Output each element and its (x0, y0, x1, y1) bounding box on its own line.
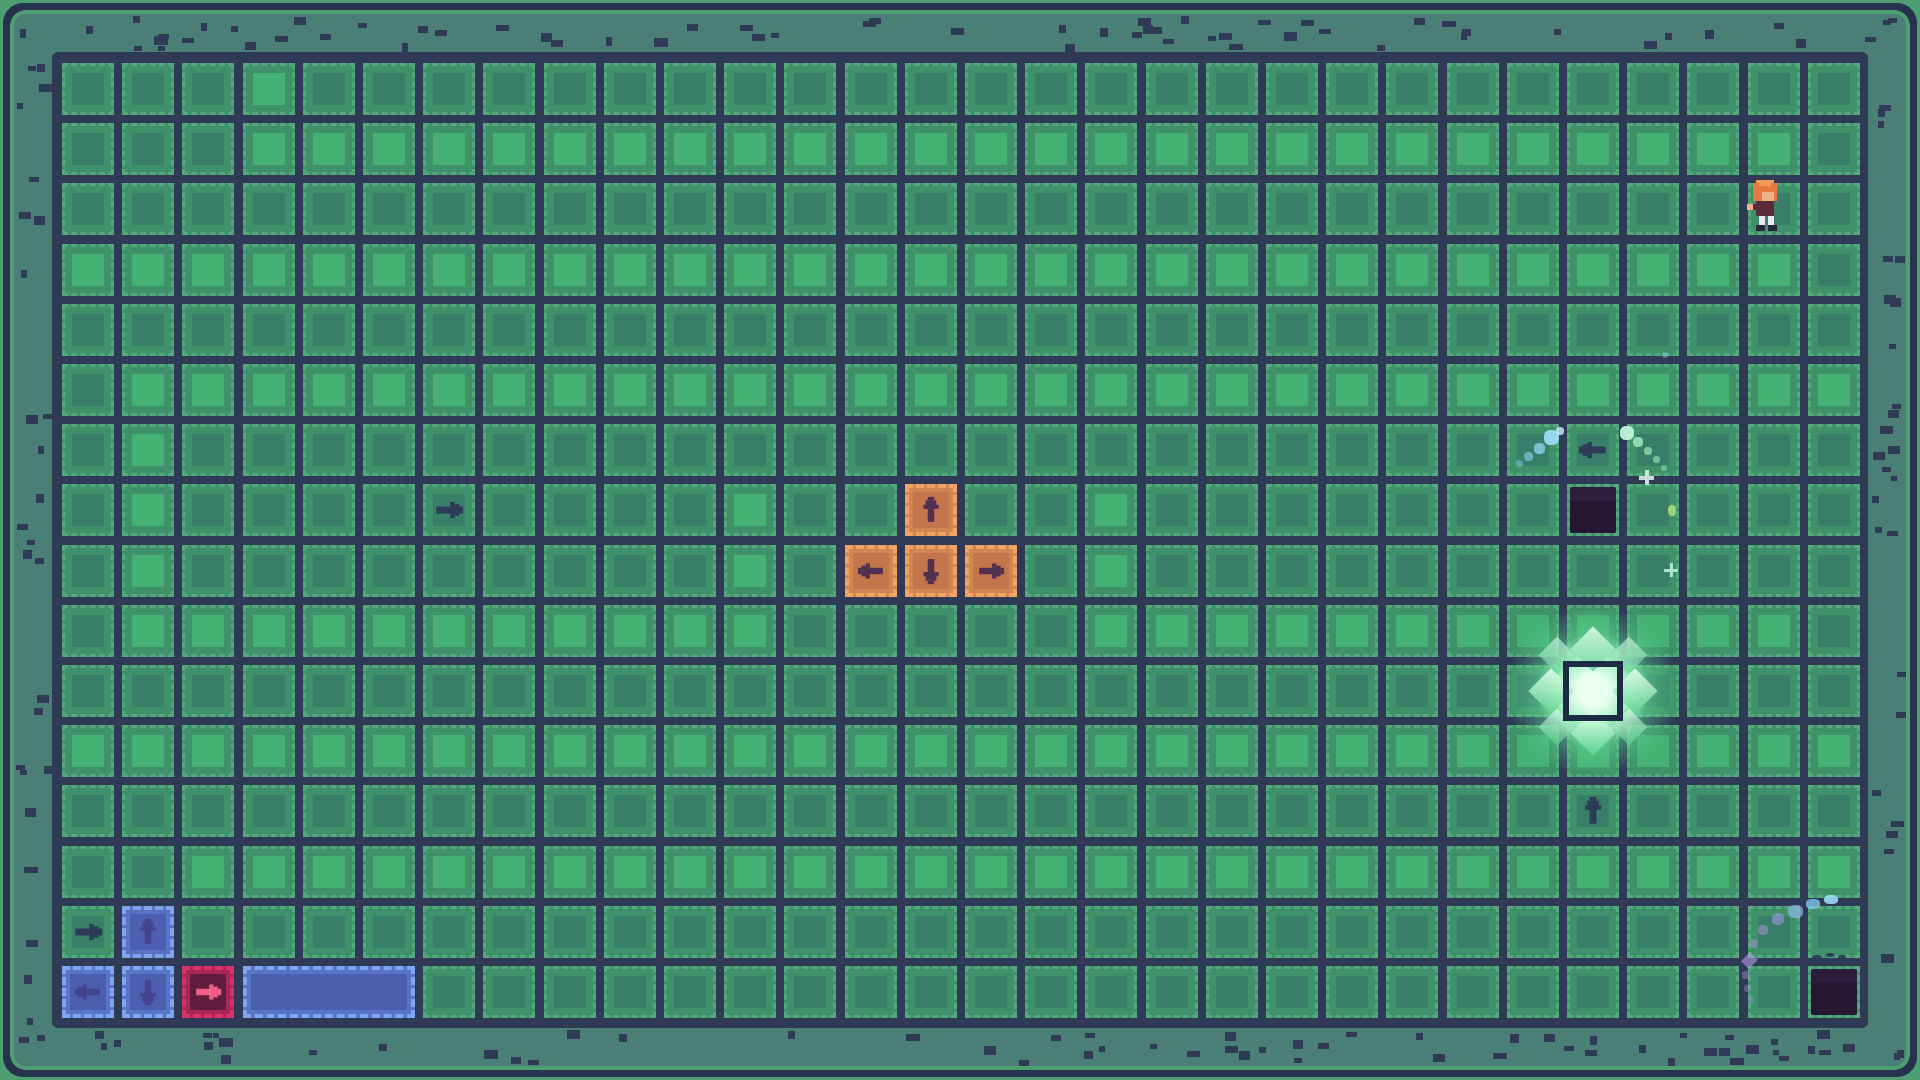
grid-cell (784, 725, 836, 777)
grid-cell (1507, 183, 1559, 235)
grid-cell (1447, 665, 1499, 717)
grid-cell (363, 906, 415, 958)
grid-cell (905, 183, 957, 235)
grid-cell (1025, 725, 1077, 777)
grid-cell-inner (674, 434, 706, 466)
grid-cell-inner (915, 735, 947, 767)
grid-cell-inner (1577, 916, 1609, 948)
grid-cell-inner (1276, 555, 1308, 587)
grid-cell (1687, 183, 1739, 235)
grid-cell-inner (373, 133, 405, 165)
grid-cell (1326, 906, 1378, 958)
grid-cell (544, 966, 596, 1018)
grid-cell (845, 484, 897, 536)
grid-cell-inner (313, 615, 345, 647)
grid-cell (1687, 966, 1739, 1018)
grid-cell-inner (1095, 314, 1127, 346)
grid-cell (544, 123, 596, 175)
grid-cell (1567, 966, 1619, 1018)
grid-cell (303, 665, 355, 717)
grid-cell-inner (72, 856, 104, 888)
grid-cell-inner (1095, 133, 1127, 165)
grid-cell (1808, 785, 1860, 837)
grid-cell (62, 484, 114, 536)
grid-cell (1326, 304, 1378, 356)
grid-cell (243, 63, 295, 115)
grid-cell (1085, 63, 1137, 115)
grid-cell (1447, 725, 1499, 777)
orange-arrow-tile-up[interactable] (905, 484, 957, 536)
grid-cell-inner (1457, 916, 1489, 948)
grid-cell-inner (674, 856, 706, 888)
grid-cell (243, 244, 295, 296)
grid-cell-inner (132, 555, 164, 587)
grid-cell (544, 846, 596, 898)
grid-cell-inner (1336, 73, 1368, 105)
grid-cell (724, 966, 776, 1018)
blue-arrow-tile-up[interactable] (122, 906, 174, 958)
grid-cell (1025, 846, 1077, 898)
grid-cell (1146, 605, 1198, 657)
grid-cell-inner (493, 494, 525, 526)
grid-cell-inner (132, 494, 164, 526)
grid-cell (1687, 846, 1739, 898)
grid-cell-inner (313, 73, 345, 105)
grid-cell (182, 906, 234, 958)
grid-cell (1266, 605, 1318, 657)
grid-cell-inner (1156, 374, 1188, 406)
grid-cell (1748, 424, 1800, 476)
grid-cell-inner (1637, 494, 1669, 526)
grid-cell-inner (313, 314, 345, 346)
grid-cell-inner (1336, 615, 1368, 647)
grid-cell (845, 424, 897, 476)
grid-cell-inner (1216, 856, 1248, 888)
grid-cell (724, 846, 776, 898)
grid-cell-inner (915, 73, 947, 105)
grid-cell (1085, 605, 1137, 657)
grid-cell (1206, 364, 1258, 416)
grid-cell (604, 484, 656, 536)
grid-cell-inner (915, 314, 947, 346)
grid-cell (1567, 846, 1619, 898)
grid-cell-inner (1156, 675, 1188, 707)
grid-cell-inner (253, 374, 285, 406)
grid-cell (62, 244, 114, 296)
grid-cell-inner (1156, 133, 1188, 165)
grid-cell (784, 966, 836, 1018)
grid-cell-inner (1336, 254, 1368, 286)
blue-arrow-tile-left[interactable] (62, 966, 114, 1018)
grid-cell-inner (493, 795, 525, 827)
grid-cell (1146, 785, 1198, 837)
grid-cell-inner (1216, 193, 1248, 225)
grid-cell (845, 846, 897, 898)
grid-cell-inner (72, 193, 104, 225)
grid-cell-inner (433, 193, 465, 225)
grid-cell-inner (433, 856, 465, 888)
player-character[interactable] (1747, 180, 1783, 238)
grid-cell (182, 364, 234, 416)
grid-cell (1326, 966, 1378, 1018)
grid-cell (62, 605, 114, 657)
grid-cell-inner (915, 675, 947, 707)
grid-cell (1025, 484, 1077, 536)
grid-cell-inner (1095, 976, 1127, 1008)
grid-cell-inner (734, 254, 766, 286)
grid-cell-inner (493, 254, 525, 286)
grid-cell-inner (1758, 976, 1790, 1008)
grid-cell (604, 785, 656, 837)
grid-cell (423, 545, 475, 597)
grid-cell-inner (132, 615, 164, 647)
grid-cell (1748, 63, 1800, 115)
grid-cell (724, 906, 776, 958)
grid-cell (122, 364, 174, 416)
grid-cell (965, 906, 1017, 958)
grid-cell (182, 545, 234, 597)
grid-cell-inner (1095, 856, 1127, 888)
grid-cell-inner (1577, 314, 1609, 346)
grid-cell (604, 244, 656, 296)
grid-cell-inner (674, 615, 706, 647)
grid-cell (905, 665, 957, 717)
grid-cell-inner (1637, 976, 1669, 1008)
grid-cell-inner (1095, 374, 1127, 406)
grid-cell-inner (915, 916, 947, 948)
grid-cell (724, 725, 776, 777)
grid-cell (664, 123, 716, 175)
grid-cell (1507, 364, 1559, 416)
grid-cell (1206, 605, 1258, 657)
ground-arrow-right (62, 906, 114, 958)
grid-cell (724, 484, 776, 536)
grid-cell (1748, 545, 1800, 597)
grid-cell (604, 424, 656, 476)
grid-cell-inner (373, 555, 405, 587)
orange-arrow-tile-left[interactable] (845, 545, 897, 597)
blue-bar-tile[interactable] (243, 966, 415, 1018)
grid-cell (544, 244, 596, 296)
grid-cell (905, 846, 957, 898)
grid-cell-inner (493, 976, 525, 1008)
grid-cell (905, 304, 957, 356)
grid-cell (1748, 244, 1800, 296)
grid-cell (182, 785, 234, 837)
grid-cell-inner (1457, 133, 1489, 165)
grid-cell-inner (975, 374, 1007, 406)
grid-cell (905, 605, 957, 657)
particle-dot (1662, 352, 1668, 358)
grid-cell (1146, 183, 1198, 235)
grid-cell (1025, 244, 1077, 296)
orange-arrow-tile-right[interactable] (965, 545, 1017, 597)
grid-cell-inner (1396, 73, 1428, 105)
grid-cell (965, 244, 1017, 296)
grid-cell (1146, 665, 1198, 717)
grid-cell (604, 966, 656, 1018)
grid-cell-inner (1276, 434, 1308, 466)
grid-cell-inner (915, 976, 947, 1008)
grid-cell-inner (1156, 795, 1188, 827)
grid-cell-inner (1637, 916, 1669, 948)
grid-cell (544, 545, 596, 597)
grid-cell-inner (975, 795, 1007, 827)
grid-cell (122, 244, 174, 296)
grid-cell-inner (1156, 494, 1188, 526)
grid-cell-inner (554, 856, 586, 888)
grid-cell-inner (1457, 193, 1489, 225)
grid-cell (1266, 123, 1318, 175)
grid-cell-inner (1095, 916, 1127, 948)
grid-cell-inner (1697, 856, 1729, 888)
grid-cell (122, 63, 174, 115)
grid-cell (483, 605, 535, 657)
grid-cell-inner (313, 374, 345, 406)
grid-cell (1627, 364, 1679, 416)
grid-cell-inner (1577, 976, 1609, 1008)
grid-cell (62, 785, 114, 837)
grid-cell-inner (1276, 374, 1308, 406)
grid-cell (965, 484, 1017, 536)
grid-cell (1025, 123, 1077, 175)
grid-cell-inner (915, 434, 947, 466)
grid-cell-inner (493, 735, 525, 767)
grid-cell (1748, 966, 1800, 1018)
grid-cell-inner (1336, 976, 1368, 1008)
grid-cell (483, 123, 535, 175)
grid-cell-inner (1396, 976, 1428, 1008)
grid-cell (784, 484, 836, 536)
grid-cell-inner (1035, 314, 1067, 346)
grid-cell (604, 364, 656, 416)
grid-cell-inner (1336, 675, 1368, 707)
grid-cell (965, 123, 1017, 175)
grid-cell (182, 244, 234, 296)
grid-cell-inner (1758, 735, 1790, 767)
grid-cell (1627, 304, 1679, 356)
grid-cell (1808, 183, 1860, 235)
grid-cell-inner (614, 856, 646, 888)
grid-cell-inner (313, 735, 345, 767)
grid-cell (1085, 304, 1137, 356)
grid-cell-inner (132, 133, 164, 165)
grid-cell (1627, 63, 1679, 115)
grid-cell-inner (1095, 735, 1127, 767)
grid-cell (1025, 605, 1077, 657)
grid-cell (1386, 304, 1438, 356)
grid-cell (363, 364, 415, 416)
grid-cell (544, 484, 596, 536)
grid-cell-inner (1818, 494, 1850, 526)
grid-cell-inner (132, 73, 164, 105)
grid-cell-inner (674, 916, 706, 948)
grid-cell-inner (794, 494, 826, 526)
down-arrow-icon (134, 978, 162, 1006)
grid-cell-inner (1035, 133, 1067, 165)
grid-cell (1266, 906, 1318, 958)
grid-cell (182, 484, 234, 536)
particle-dot (1644, 447, 1652, 455)
grid-cell-inner (855, 314, 887, 346)
grid-cell (664, 244, 716, 296)
grid-cell-inner (674, 193, 706, 225)
grid-cell-inner (554, 254, 586, 286)
grid-cell (1386, 545, 1438, 597)
grid-cell-inner (1758, 615, 1790, 647)
grid-cell (303, 364, 355, 416)
grid-cell (483, 545, 535, 597)
grid-cell-inner (1156, 916, 1188, 948)
grid-cell-inner (734, 314, 766, 346)
grid-cell (122, 785, 174, 837)
grid-cell-inner (313, 675, 345, 707)
grid-cell-inner (373, 374, 405, 406)
grid-cell (122, 605, 174, 657)
grid-cell (62, 123, 114, 175)
grid-cell-inner (373, 916, 405, 948)
grid-cell-inner (1758, 254, 1790, 286)
grid-cell-inner (1457, 555, 1489, 587)
particle-dot (1516, 460, 1523, 467)
grid-cell-inner (1517, 314, 1549, 346)
grid-cell (363, 785, 415, 837)
grid-cell-inner (72, 314, 104, 346)
grid-cell-inner (614, 494, 646, 526)
grid-cell (905, 785, 957, 837)
grid-cell-inner (493, 193, 525, 225)
grid-cell (1326, 846, 1378, 898)
grid-cell-inner (1396, 735, 1428, 767)
grid-cell-inner (1095, 254, 1127, 286)
grid-cell-inner (132, 795, 164, 827)
grid-cell-inner (1035, 193, 1067, 225)
orange-arrow-tile-down[interactable] (905, 545, 957, 597)
grid-cell (905, 725, 957, 777)
grid-cell (784, 244, 836, 296)
grid-cell (724, 424, 776, 476)
grid-cell (182, 123, 234, 175)
grid-cell (664, 665, 716, 717)
grid-cell-inner (1818, 193, 1850, 225)
grid-cell (965, 183, 1017, 235)
grid-cell (1808, 906, 1860, 958)
grid-cell (724, 304, 776, 356)
grid-cell-inner (132, 193, 164, 225)
grid-cell (122, 846, 174, 898)
grid-cell-inner (1216, 615, 1248, 647)
grid-cell-inner (1697, 374, 1729, 406)
grid-cell-inner (794, 615, 826, 647)
grid-cell (62, 183, 114, 235)
grid-cell (243, 424, 295, 476)
grid-cell-inner (72, 555, 104, 587)
grid-cell (1687, 424, 1739, 476)
grid-cell-inner (192, 314, 224, 346)
blue-arrow-tile-down[interactable] (122, 966, 174, 1018)
grid-cell (1687, 304, 1739, 356)
grid-cell (1025, 63, 1077, 115)
grid-cell (724, 123, 776, 175)
grid-cell-inner (1818, 735, 1850, 767)
grid-cell (62, 846, 114, 898)
grid-cell-inner (734, 73, 766, 105)
grid-cell (1627, 424, 1679, 476)
grid-cell-inner (975, 133, 1007, 165)
grid-cell (1085, 123, 1137, 175)
grid-cell-inner (1216, 555, 1248, 587)
grid-cell (1085, 966, 1137, 1018)
grid-cell (483, 966, 535, 1018)
pink-arrow-tile-right[interactable] (182, 966, 234, 1018)
grid-cell (1507, 545, 1559, 597)
grid-cell (1326, 244, 1378, 296)
grid-cell (1085, 846, 1137, 898)
grid-cell-inner (734, 976, 766, 1008)
grid-cell-inner (373, 856, 405, 888)
grid-cell (1206, 906, 1258, 958)
grid-cell (1206, 183, 1258, 235)
grid-cell (363, 665, 415, 717)
grid-cell (303, 545, 355, 597)
grid-cell (1748, 123, 1800, 175)
grid-cell-inner (1216, 675, 1248, 707)
grid-cell (1386, 484, 1438, 536)
grid-cell (1206, 63, 1258, 115)
grid-cell-inner (1396, 916, 1428, 948)
grid-cell-inner (614, 193, 646, 225)
grid-cell (423, 63, 475, 115)
grid-cell (122, 545, 174, 597)
grid-cell (965, 364, 1017, 416)
grid-cell-inner (1818, 434, 1850, 466)
grid-cell (1025, 545, 1077, 597)
grid-cell-inner (1758, 555, 1790, 587)
grid-cell-inner (1095, 494, 1127, 526)
grid-cell (1687, 244, 1739, 296)
grid-cell-inner (72, 374, 104, 406)
grid-cell (303, 123, 355, 175)
grid-cell-inner (1276, 494, 1308, 526)
grid-cell-inner (674, 133, 706, 165)
grid-cell-inner (1035, 615, 1067, 647)
grid-cell-inner (674, 254, 706, 286)
grid-cell (1748, 304, 1800, 356)
grid-cell (845, 785, 897, 837)
grid-cell (1085, 725, 1137, 777)
grid-cell (1326, 545, 1378, 597)
grid-cell (483, 364, 535, 416)
glow-square-outline (1563, 661, 1623, 721)
grid-cell-inner (1276, 856, 1308, 888)
grid-cell-inner (1336, 494, 1368, 526)
glow-target (1567, 665, 1619, 717)
grid-cell (1567, 244, 1619, 296)
grid-cell-inner (433, 675, 465, 707)
grid-cell (1326, 123, 1378, 175)
grid-cell-inner (1758, 73, 1790, 105)
grid-cell-inner (855, 374, 887, 406)
grid-cell-inner (1818, 555, 1850, 587)
grid-cell (1567, 123, 1619, 175)
grid-cell (122, 484, 174, 536)
grid-cell-inner (72, 254, 104, 286)
grid-cell-inner (433, 916, 465, 948)
grid-cell-inner (493, 374, 525, 406)
grid-cell (1025, 424, 1077, 476)
grid-cell (1025, 966, 1077, 1018)
grid-cell-inner (192, 555, 224, 587)
